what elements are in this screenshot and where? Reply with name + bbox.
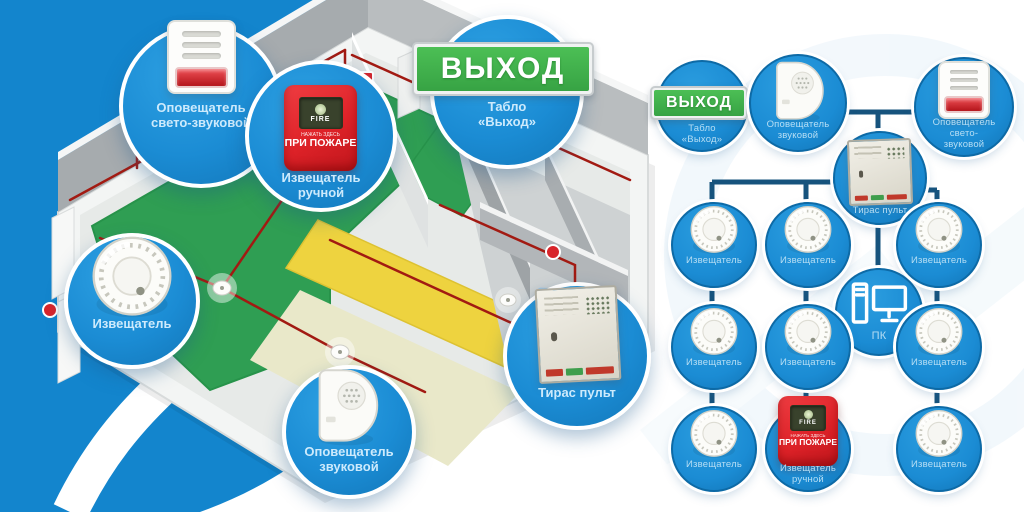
callout-smoke-detector-label: Извещатель <box>77 317 187 332</box>
node-smoke-detector-label: Извещатель <box>770 256 846 267</box>
sounder-icon <box>308 367 384 447</box>
callout-sounder-label: Оповещатель звуковой <box>299 445 399 475</box>
node-smoke-detector-8: Извещатель <box>896 406 982 492</box>
node-exit-board-label: Табло «Выход» <box>673 124 731 146</box>
callout-exit-board-label: Табло «Выход» <box>462 100 552 130</box>
node-manual-call-point: FIRE НАЖАТЬ ЗДЕСЬ ПРИ ПОЖАРЕ Извещатель … <box>765 406 851 492</box>
node-smoke-detector-label: Извещатель <box>676 460 752 471</box>
node-smoke-detector-5: Извещатель <box>765 304 851 390</box>
node-exit-board: ВЫХОД Табло «Выход» <box>656 60 748 152</box>
node-smoke-detector-7: Извещатель <box>671 406 757 492</box>
control-panel-icon <box>535 285 622 384</box>
node-strobe-label: Оповещатель свето-звуковой <box>931 118 997 151</box>
smoke-detector-icon <box>911 307 967 358</box>
node-smoke-detector-label: Извещатель <box>676 358 752 369</box>
node-smoke-detector-label: Извещатель <box>901 460 977 471</box>
smoke-detector-icon <box>686 409 742 460</box>
control-panel-icon <box>847 138 913 206</box>
manual-call-point-icon: FIRE НАЖАТЬ ЗДЕСЬ ПРИ ПОЖАРЕ <box>778 396 838 466</box>
node-smoke-detector-label: Извещатель <box>676 256 752 267</box>
callout-sounder: Оповещатель звуковой <box>282 365 416 499</box>
smoke-detector-icon <box>780 205 836 256</box>
callout-smoke-detector: Извещатель <box>64 233 200 369</box>
pc-icon <box>848 280 910 330</box>
callout-control-panel-label: Тирас пульт <box>517 386 637 401</box>
smoke-detector-icon <box>686 307 742 358</box>
smoke-detector-icon <box>911 205 967 256</box>
exit-sign: ВЫХОД <box>412 42 594 96</box>
node-sounder-label: Оповещатель звуковой <box>759 120 837 142</box>
smoke-detector-icon <box>780 307 836 358</box>
callout-manual-call-point: FIRE НАЖАТЬ ЗДЕСЬ ПРИ ПОЖАРЕ Извещатель … <box>245 60 397 212</box>
node-smoke-detector-label: Извещатель <box>770 358 846 369</box>
node-smoke-detector-label: Извещатель <box>901 256 977 267</box>
light-sound-annunciator-icon <box>938 61 990 119</box>
node-manual-call-point-label: Извещатель ручной <box>772 464 844 486</box>
node-smoke-detector-2: Извещатель <box>765 202 851 288</box>
node-smoke-detector-6: Извещатель <box>896 304 982 390</box>
node-smoke-detector-1: Извещатель <box>671 202 757 288</box>
callout-exit-board: ВЫХОД Табло «Выход» <box>430 15 584 169</box>
callout-control-panel: Тирас пульт <box>503 282 651 430</box>
manual-call-point-icon: FIRE НАЖАТЬ ЗДЕСЬ ПРИ ПОЖАРЕ <box>284 85 357 171</box>
smoke-detector-icon <box>85 235 179 321</box>
node-strobe: Оповещатель свето-звуковой <box>914 57 1014 157</box>
exit-sign-small: ВЫХОД <box>650 86 748 120</box>
node-smoke-detector-4: Извещатель <box>671 304 757 390</box>
smoke-detector-icon <box>686 205 742 256</box>
node-pc-label: ПК <box>859 330 899 343</box>
light-sound-annunciator-icon <box>167 20 236 94</box>
sounder-icon <box>769 60 827 124</box>
node-sounder: Оповещатель звуковой <box>749 54 847 152</box>
smoke-detector-icon <box>911 409 967 460</box>
callout-manual-call-point-label: Извещатель ручной <box>266 171 376 201</box>
node-smoke-detector-label: Извещатель <box>901 358 977 369</box>
callout-strobe-label: Оповещатель свето-звуковой <box>151 101 251 131</box>
fire-alarm-infographic: Оповещатель свето-звуковой FIRE НАЖАТЬ З… <box>0 0 1024 512</box>
node-smoke-detector-3: Извещатель <box>896 202 982 288</box>
